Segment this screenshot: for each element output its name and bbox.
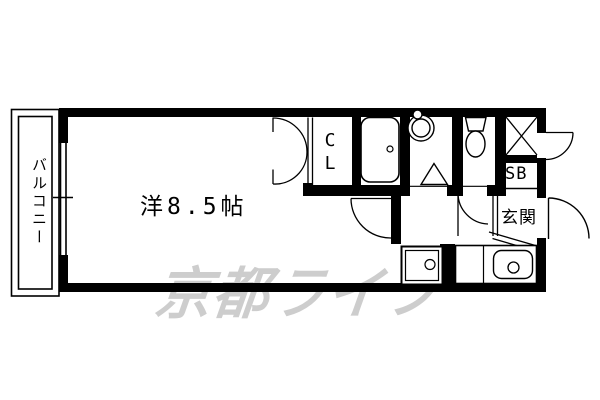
shaft-door-swing [546, 133, 573, 160]
balcony-label: バルコニー [27, 150, 51, 254]
shoebox-label: SB [505, 164, 527, 184]
wall-segment [391, 196, 401, 244]
wall-segment [537, 108, 546, 133]
wall-segment [352, 108, 361, 196]
balcony-window [53, 143, 73, 256]
crossed-shaft-icon [506, 117, 537, 155]
shower-triangle-icon [421, 164, 448, 185]
entrance-label: 玄関 [501, 203, 537, 228]
wall-segment [452, 108, 463, 196]
floorplan-drawing [0, 0, 600, 400]
wall-segment [59, 108, 546, 117]
room-door-swing [351, 199, 391, 239]
closet-door-frame [308, 118, 313, 186]
closet-double-door [273, 118, 313, 186]
closet-label: CL [322, 129, 338, 175]
wall-segment [506, 155, 537, 163]
bathtub-icon [361, 118, 399, 183]
wall-segment [303, 185, 403, 196]
wall-segment [59, 283, 546, 292]
entrance-door-swing [549, 198, 590, 239]
floorplan-canvas: 京都ライフ [0, 0, 600, 400]
main-room-label: 洋8.5帖 [140, 187, 248, 221]
kitchen-sink-icon [456, 246, 537, 284]
toilet-door-swing [458, 192, 488, 236]
washing-machine-icon [402, 247, 443, 285]
toilet-icon [466, 118, 487, 158]
wall-segment [537, 158, 546, 198]
wall-segment [59, 108, 68, 143]
wall-segment [400, 108, 410, 196]
wall-segment [59, 255, 68, 292]
